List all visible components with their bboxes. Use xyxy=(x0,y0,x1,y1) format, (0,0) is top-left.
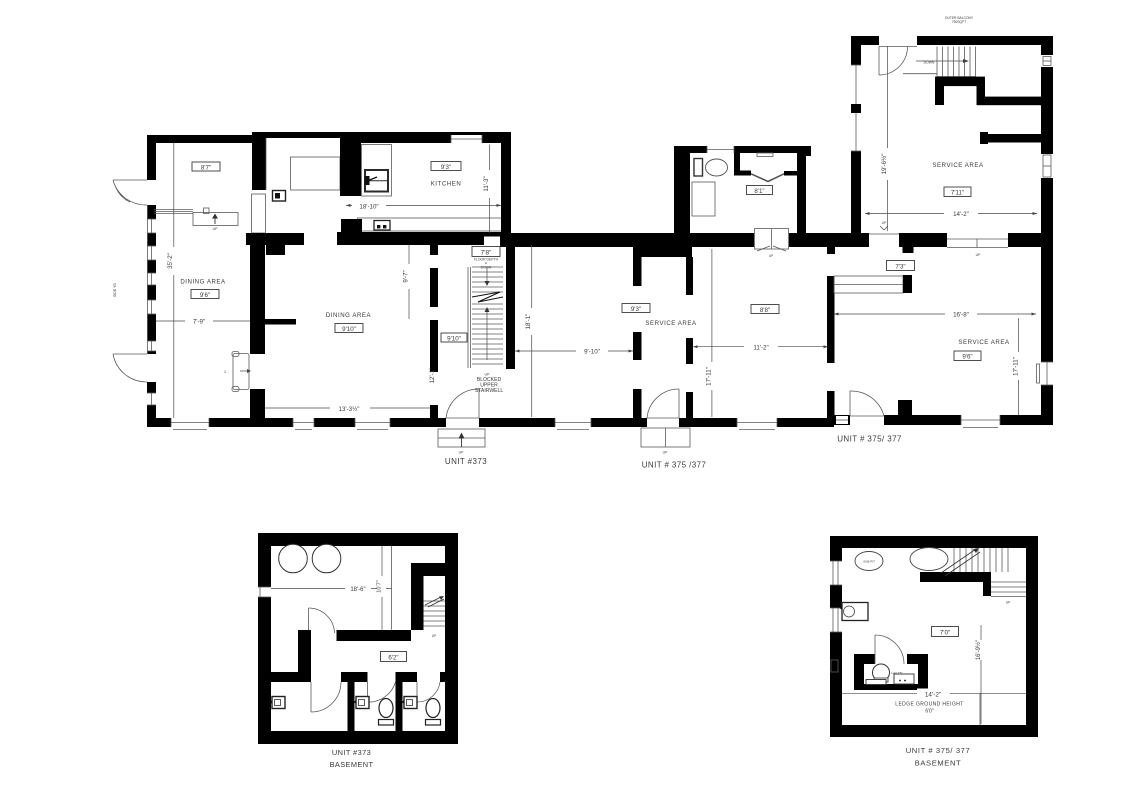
svg-text:9'10": 9'10" xyxy=(342,326,356,333)
svg-text:9'-7": 9'-7" xyxy=(403,270,410,282)
svg-text:9'6": 9'6" xyxy=(200,292,210,299)
svg-text:UP: UP xyxy=(663,451,668,455)
svg-text:9'3": 9'3" xyxy=(631,306,641,313)
svg-text:12'-1": 12'-1" xyxy=(429,368,436,384)
svg-text:8'7": 8'7" xyxy=(201,164,211,171)
svg-text:SIDE YD: SIDE YD xyxy=(113,282,117,297)
svg-text:7'8": 7'8" xyxy=(481,250,492,257)
svg-text:UP: UP xyxy=(459,451,464,455)
svg-text:14'-2": 14'-2" xyxy=(925,691,941,698)
svg-text:18'-10": 18'-10" xyxy=(359,203,378,210)
svg-text:7'3": 7'3" xyxy=(895,263,905,270)
svg-text:35'-2": 35'-2" xyxy=(167,253,174,269)
svg-text:17'-11": 17'-11" xyxy=(706,367,713,386)
svg-text:16'-8": 16'-8" xyxy=(953,312,969,319)
svg-text:11'-3": 11'-3" xyxy=(483,176,490,191)
svg-text:11'-2": 11'-2" xyxy=(753,345,768,352)
svg-text:9'10": 9'10" xyxy=(447,335,461,342)
svg-text:SERVICE AREA: SERVICE AREA xyxy=(958,339,1010,346)
svg-text:13'-3½": 13'-3½" xyxy=(339,406,360,413)
svg-text:UP: UP xyxy=(432,634,436,638)
svg-text:7'11": 7'11" xyxy=(951,190,964,197)
svg-text:DOWN: DOWN xyxy=(481,266,492,270)
svg-text:UNIT # 375/ 377: UNIT # 375/ 377 xyxy=(837,435,902,444)
svg-text:9'-10": 9'-10" xyxy=(584,349,600,356)
svg-text:UP: UP xyxy=(769,254,773,258)
svg-text:UNIT # 375/ 377: UNIT # 375/ 377 xyxy=(906,746,971,755)
svg-text:750SQFT: 750SQFT xyxy=(952,20,966,24)
svg-text:8'1": 8'1" xyxy=(754,188,764,195)
svg-text:BASEMENT: BASEMENT xyxy=(915,759,962,768)
svg-text:UP: UP xyxy=(485,373,491,377)
svg-text:6'2": 6'2" xyxy=(388,655,398,662)
svg-text:UNIT #373: UNIT #373 xyxy=(445,457,487,466)
svg-text:DINING AREA: DINING AREA xyxy=(326,312,372,319)
svg-text:19'-6½": 19'-6½" xyxy=(881,154,888,175)
svg-text:DOWN: DOWN xyxy=(924,61,935,65)
svg-text:18'-1": 18'-1" xyxy=(525,314,532,330)
svg-text:7'-9": 7'-9" xyxy=(193,319,205,326)
svg-text:SERVICE AREA: SERVICE AREA xyxy=(932,162,984,169)
svg-text:7'0": 7'0" xyxy=(940,630,951,637)
svg-text:UNIT #373: UNIT #373 xyxy=(332,748,371,757)
svg-text:BASEMENT: BASEMENT xyxy=(330,760,374,769)
svg-text:UP: UP xyxy=(1006,601,1010,605)
svg-text:KITCHEN: KITCHEN xyxy=(431,181,462,188)
svg-text:SUB-PIT: SUB-PIT xyxy=(863,560,875,564)
svg-text:14'-2": 14'-2" xyxy=(953,211,969,218)
svg-text:10'7": 10'7" xyxy=(377,580,383,592)
svg-text:18'-6": 18'-6" xyxy=(350,587,365,593)
svg-text:UNIT # 375 /377: UNIT # 375 /377 xyxy=(642,461,707,470)
svg-text:17'-11": 17'-11" xyxy=(1013,357,1020,376)
svg-text:UP: UP xyxy=(213,227,219,231)
svg-text:9'6": 9'6" xyxy=(962,354,972,361)
svg-text:LEDGE GROUND HEIGHT: LEDGE GROUND HEIGHT xyxy=(895,702,963,708)
svg-text:6'0": 6'0" xyxy=(925,709,934,715)
svg-text:UP: UP xyxy=(976,253,981,257)
svg-text:SERVICE AREA: SERVICE AREA xyxy=(645,320,697,327)
svg-text:DINING AREA: DINING AREA xyxy=(180,279,226,286)
svg-text:9'3": 9'3" xyxy=(441,164,451,171)
svg-text:16'-9½": 16'-9½" xyxy=(975,640,982,660)
svg-text:8'8": 8'8" xyxy=(760,307,770,314)
svg-text:STAIRWELL: STAIRWELL xyxy=(475,388,504,394)
svg-text:UP: UP xyxy=(882,221,886,225)
